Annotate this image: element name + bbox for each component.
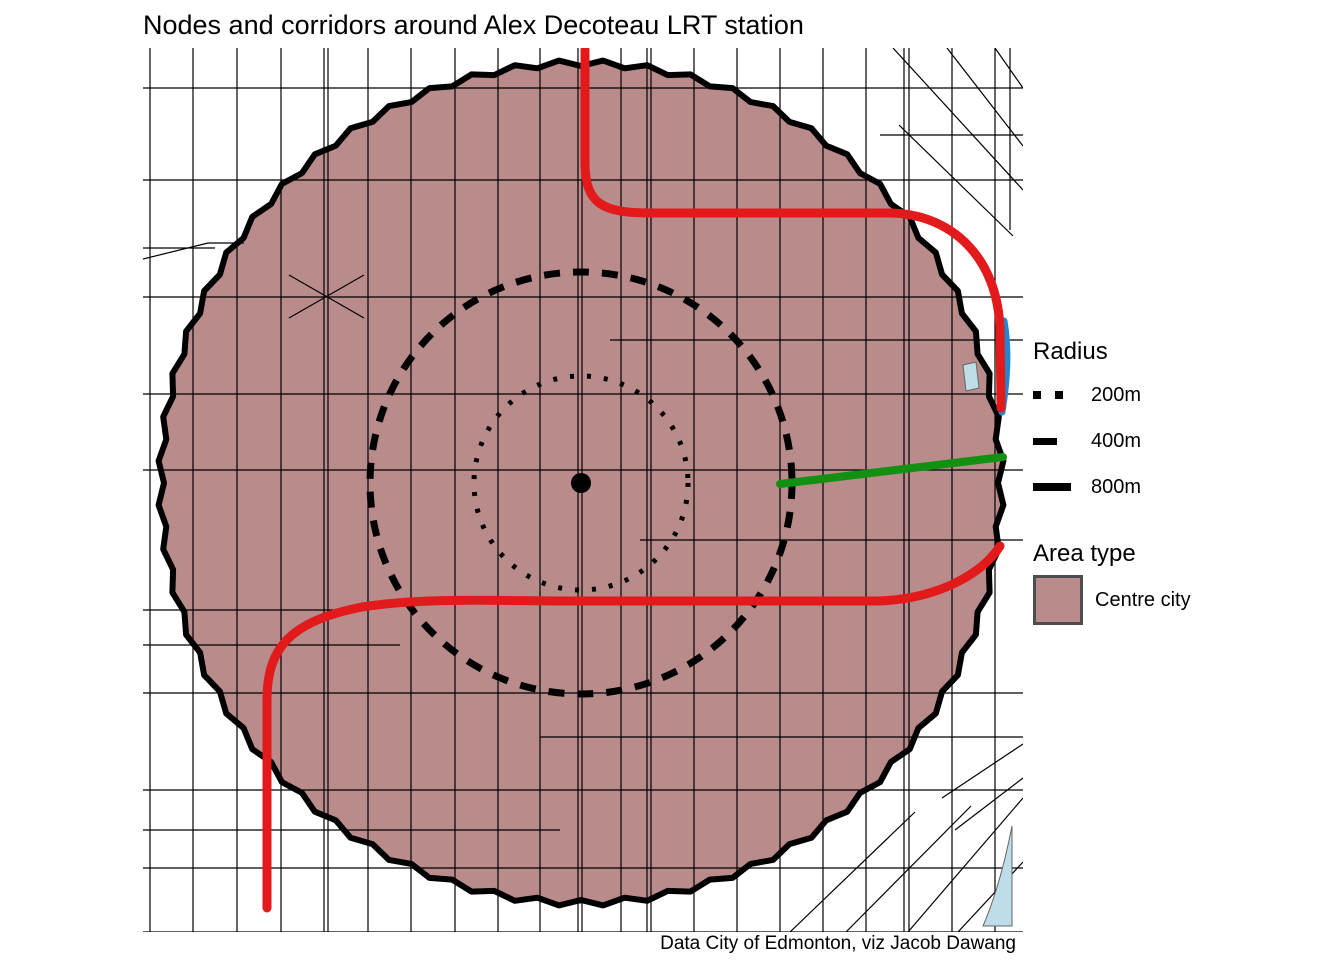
legend-item-400m: 400m bbox=[1033, 418, 1333, 464]
dotted-line-icon bbox=[1033, 391, 1079, 399]
legend-radius-title: Radius bbox=[1033, 338, 1333, 366]
legend-radius: Radius 200m 400m 800m bbox=[1033, 338, 1333, 510]
legend-label-200m: 200m bbox=[1091, 384, 1141, 407]
legend-label-400m: 400m bbox=[1091, 430, 1141, 453]
legend-item-200m: 200m bbox=[1033, 372, 1333, 418]
legend-label-800m: 800m bbox=[1091, 476, 1141, 499]
legend-area-type-title: Area type bbox=[1033, 540, 1333, 568]
water-pond bbox=[963, 362, 979, 391]
legend-item-800m: 800m bbox=[1033, 464, 1333, 510]
dashed-line-icon bbox=[1033, 438, 1079, 445]
station-center-dot bbox=[571, 473, 591, 493]
legend-label-centre-city: Centre city bbox=[1095, 589, 1191, 612]
water-river-bank bbox=[983, 826, 1012, 926]
solid-line-icon bbox=[1033, 483, 1079, 491]
legend-item-centre-city: Centre city bbox=[1033, 574, 1333, 626]
data-credit-caption: Data City of Edmonton, viz Jacob Dawang bbox=[660, 933, 1016, 955]
map-figure: Nodes and corridors around Alex Decoteau… bbox=[0, 0, 1344, 960]
centre-city-swatch bbox=[1033, 575, 1083, 625]
legend-area-type: Area type Centre city bbox=[1033, 540, 1333, 626]
